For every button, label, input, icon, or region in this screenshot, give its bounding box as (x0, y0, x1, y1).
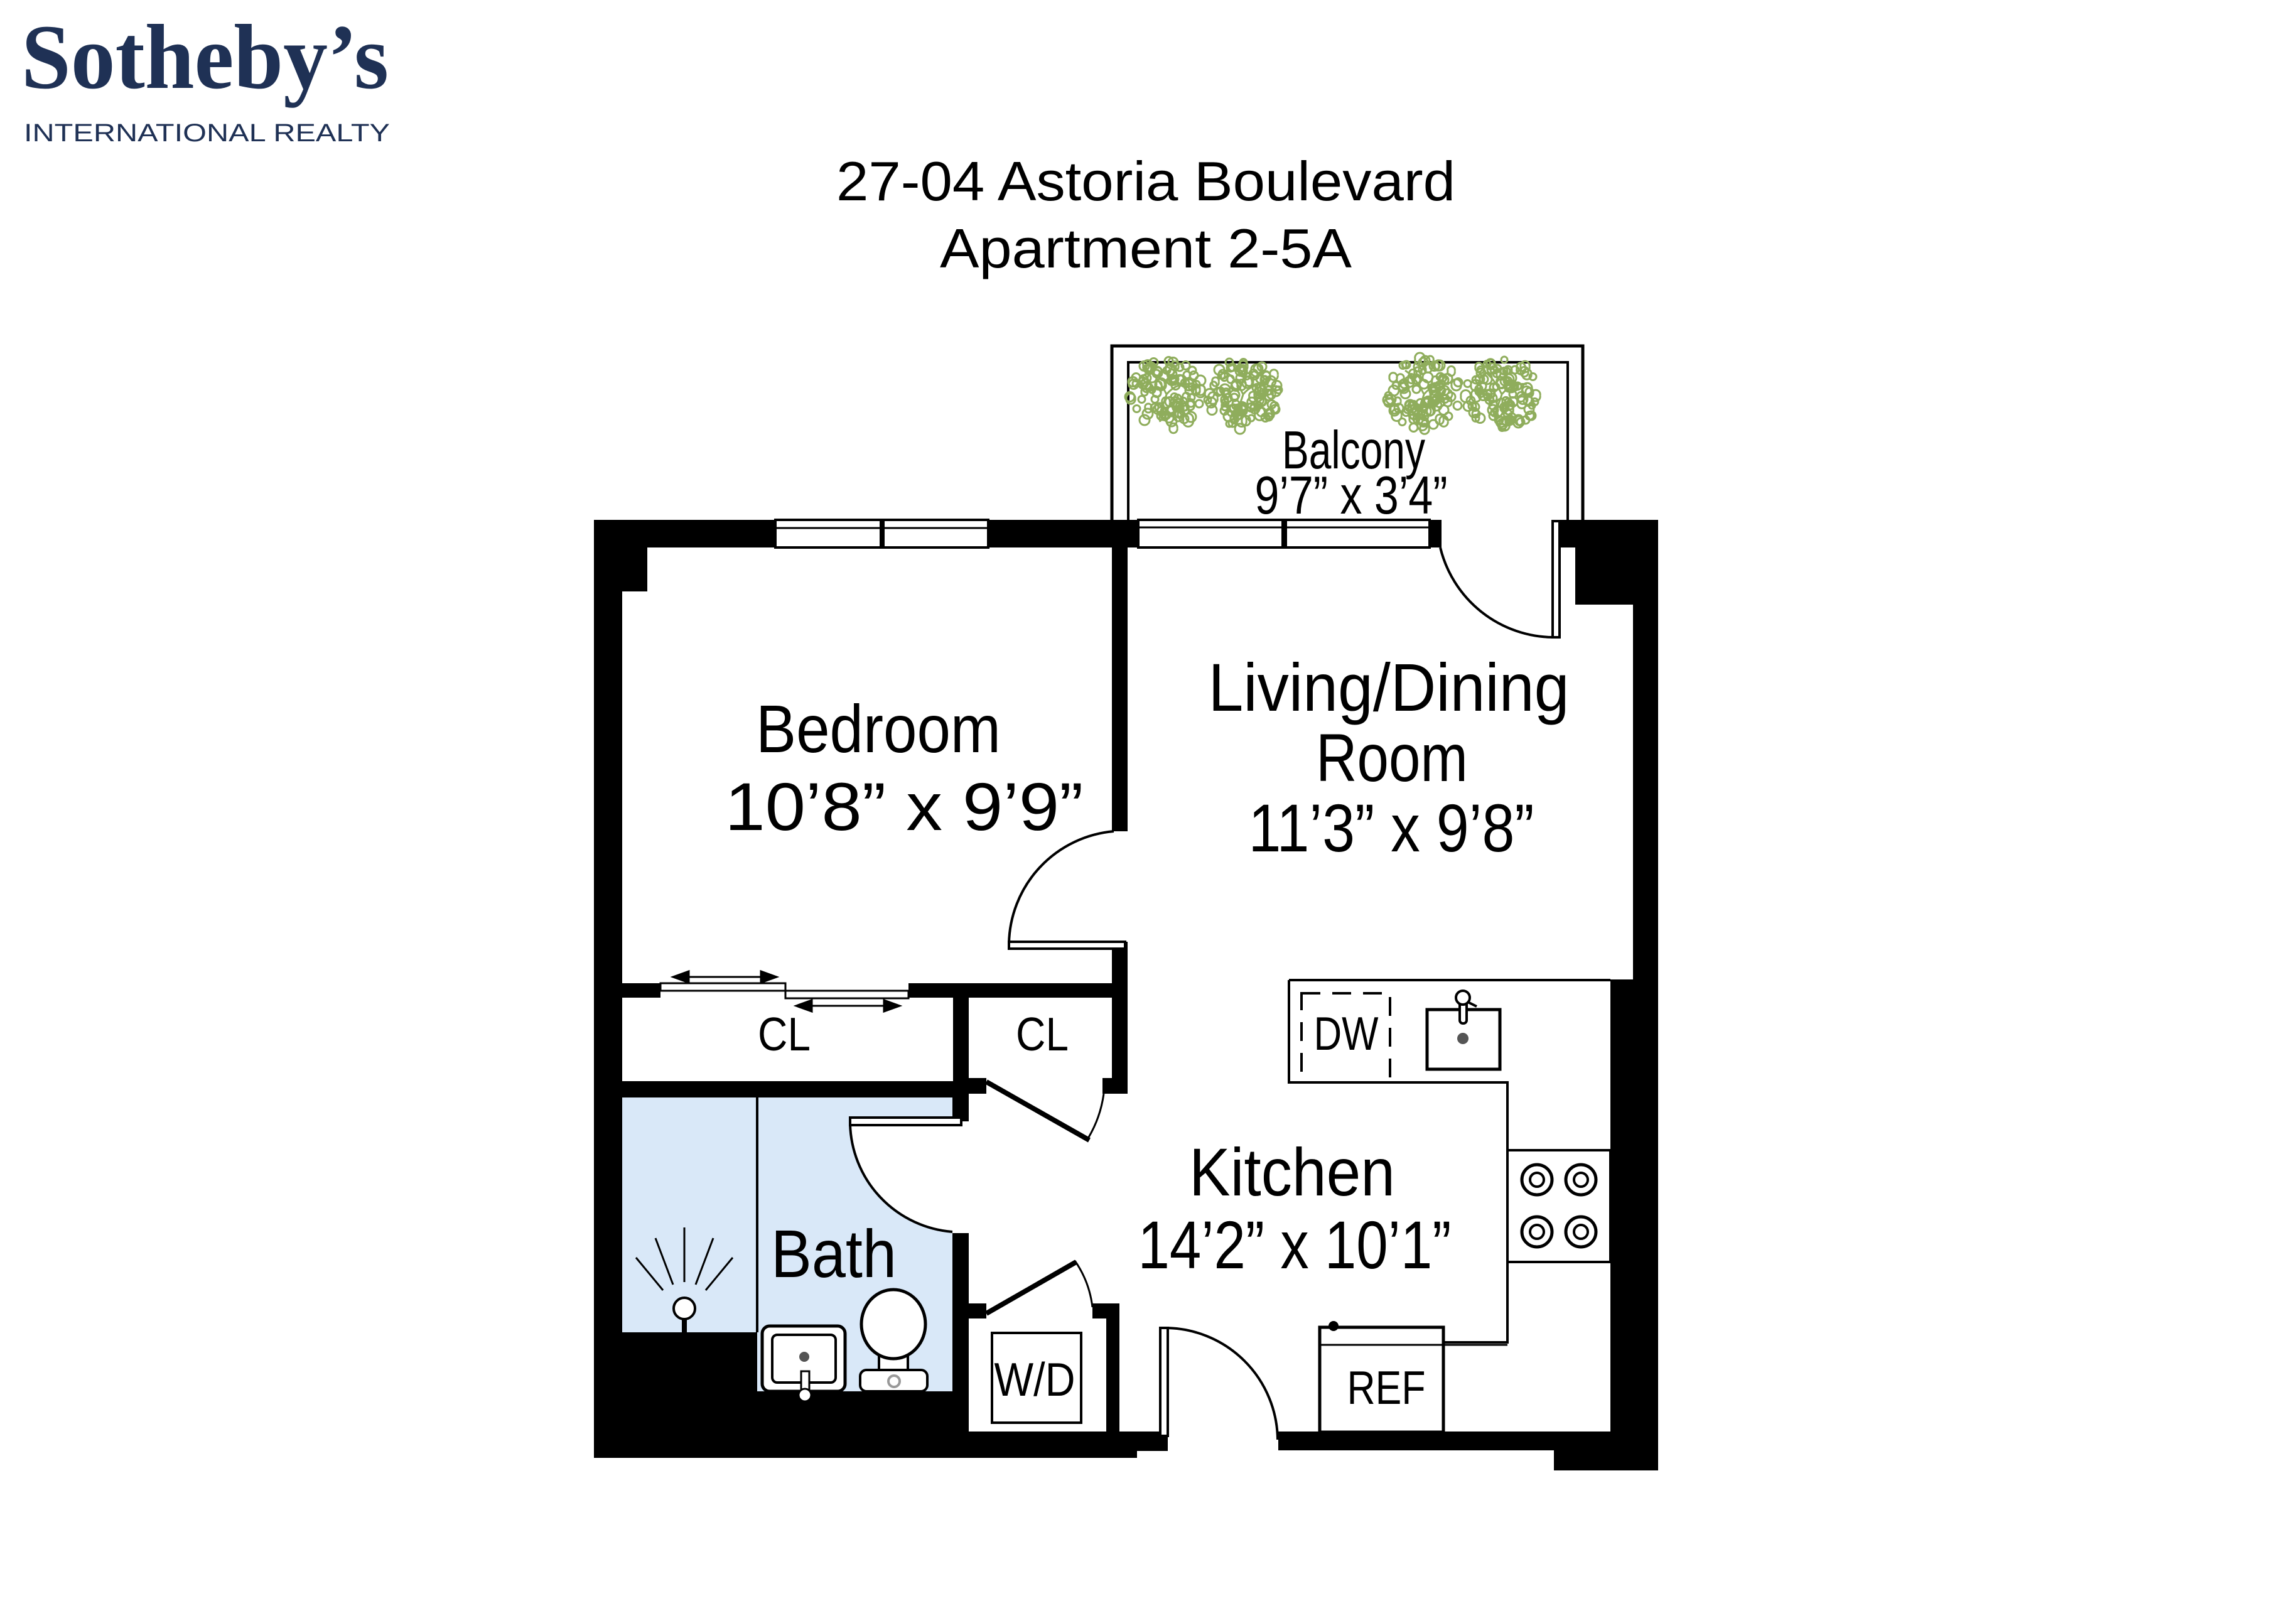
svg-text:CL: CL (758, 1008, 811, 1060)
svg-text:DW: DW (1314, 1007, 1379, 1060)
svg-text:Apartment 2-5A: Apartment 2-5A (940, 217, 1352, 279)
svg-text:Living/Dining: Living/Dining (1209, 649, 1570, 725)
svg-text:Bedroom: Bedroom (756, 691, 1001, 767)
svg-text:Bath: Bath (771, 1216, 897, 1291)
svg-text:10’8” x 9’9”: 10’8” x 9’9” (725, 768, 1084, 844)
svg-text:CL: CL (1016, 1008, 1069, 1060)
svg-text:9’7” x 3’4”: 9’7” x 3’4” (1255, 466, 1448, 526)
svg-text:11’3” x 9’8”: 11’3” x 9’8” (1249, 790, 1534, 866)
svg-text:Sotheby’s: Sotheby’s (21, 6, 389, 108)
svg-text:Kitchen: Kitchen (1189, 1134, 1395, 1210)
svg-text:27-04 Astoria Boulevard: 27-04 Astoria Boulevard (836, 150, 1455, 212)
svg-text:W/D: W/D (994, 1353, 1075, 1406)
svg-text:REF: REF (1347, 1361, 1426, 1414)
svg-text:Room: Room (1316, 720, 1468, 795)
svg-text:14’2” x 10’1”: 14’2” x 10’1” (1138, 1207, 1452, 1283)
svg-text:INTERNATIONAL REALTY: INTERNATIONAL REALTY (24, 119, 390, 147)
